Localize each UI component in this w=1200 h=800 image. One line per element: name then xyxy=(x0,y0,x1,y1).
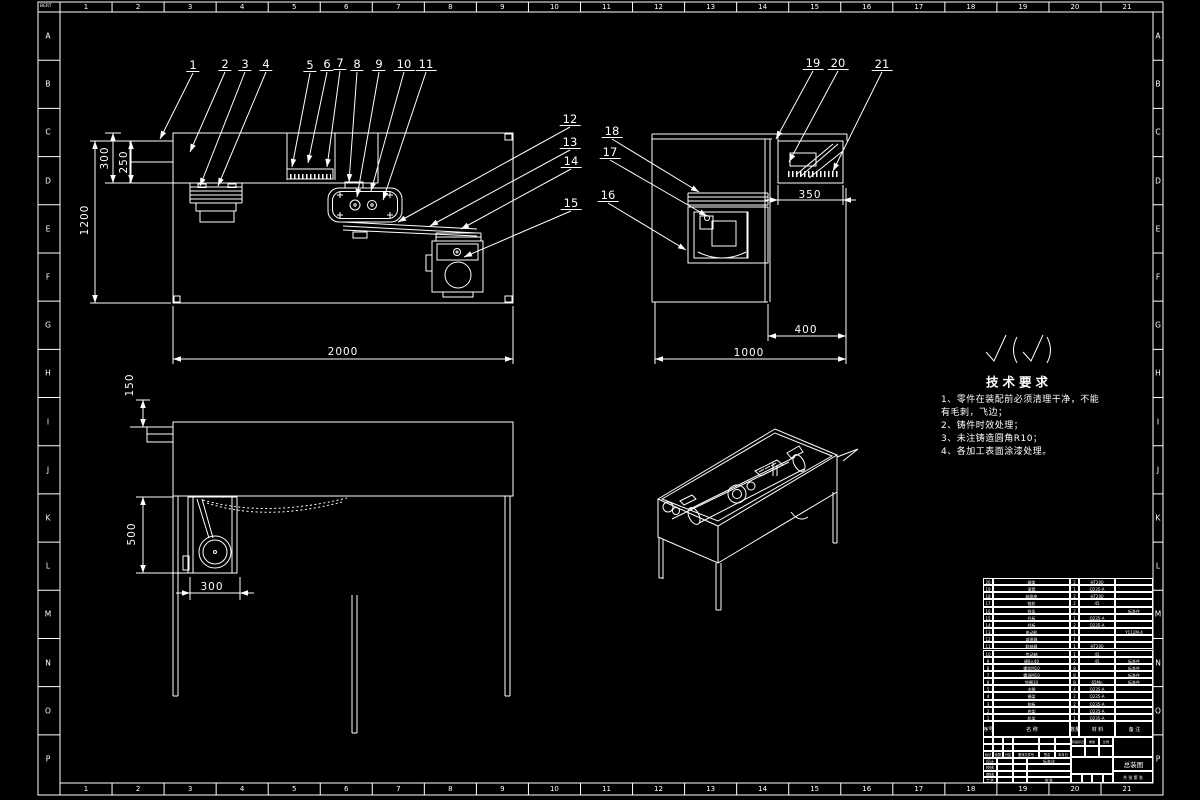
titleblock-stage-box xyxy=(1099,746,1113,757)
parts-row-3-no: 3 xyxy=(983,700,993,707)
tech-requirement-line: 2、铸件时效处理； xyxy=(941,420,1023,433)
parts-row-15-name: 托板 xyxy=(993,614,1070,621)
titleblock-cell xyxy=(1003,744,1013,751)
callout-20: 20 xyxy=(828,57,849,70)
zone-letter-left: O xyxy=(45,706,51,715)
parts-row-10-rem xyxy=(1115,650,1153,657)
front-view xyxy=(90,133,513,364)
surface-finish-icon xyxy=(986,335,1051,363)
parts-row-1-no: 1 xyxy=(983,714,993,721)
zone-number-bottom: 18 xyxy=(966,785,975,793)
zone-letter-right: J xyxy=(1157,465,1159,474)
parts-row-15-qty: 1 xyxy=(1070,614,1079,621)
zone-letter-right: E xyxy=(1156,224,1161,233)
parts-row-12-mat xyxy=(1079,635,1115,642)
titleblock-sign-cell xyxy=(997,777,1013,783)
parts-row-15-mat: Q235-A xyxy=(1079,614,1115,621)
callout-16: 16 xyxy=(598,189,619,202)
zone-letter-right: I xyxy=(1157,417,1159,426)
zone-number-bottom: 21 xyxy=(1123,785,1132,793)
parts-row-17-name: 链轮 xyxy=(993,599,1070,606)
parts-row-3-rem xyxy=(1115,700,1153,707)
zone-letter-right: G xyxy=(1155,321,1161,330)
titleblock-stage-box xyxy=(1071,746,1085,757)
parts-row-12-rem xyxy=(1115,635,1153,642)
zone-number-top: 5 xyxy=(292,3,296,11)
dimension-2000: 2000 xyxy=(328,346,359,358)
callout-14: 14 xyxy=(561,155,582,168)
zone-number-top: 2 xyxy=(136,3,140,11)
parts-row-8-rem: 标准件 xyxy=(1115,664,1153,671)
parts-row-12-qty: 1 xyxy=(1070,635,1079,642)
callout-6: 6 xyxy=(320,58,333,71)
parts-row-14-mat: Q235-A xyxy=(1079,621,1115,628)
titleblock-drawing-title: 总装图 xyxy=(1113,757,1153,771)
zone-letter-right: P xyxy=(1156,754,1161,763)
parts-row-6-no: 6 xyxy=(983,678,993,685)
parts-row-4-qty: 2 xyxy=(1070,692,1079,699)
parts-row-2-mat: Q235-A xyxy=(1079,707,1115,714)
parts-row-14-qty: 2 xyxy=(1070,621,1079,628)
parts-row-17-qty: 2 xyxy=(1070,599,1079,606)
callout-18: 18 xyxy=(602,125,623,138)
titleblock-cell xyxy=(1003,737,1013,744)
callout-5: 5 xyxy=(303,59,316,72)
zone-letter-left: I xyxy=(47,417,49,426)
zone-letter-left: H xyxy=(45,369,51,378)
zone-number-top: 16 xyxy=(862,3,871,11)
parts-row-10-mat: 45 xyxy=(1079,650,1115,657)
parts-row-11-name: 联轴器 xyxy=(993,642,1070,649)
callout-10: 10 xyxy=(394,58,415,71)
zone-letter-left: B xyxy=(45,80,50,89)
titleblock-cell xyxy=(1013,737,1039,744)
tech-requirement-line: 有毛刺，飞边； xyxy=(941,407,1008,420)
dimension-350: 350 xyxy=(798,189,821,201)
isometric-view xyxy=(658,429,858,610)
bottom-view xyxy=(130,400,513,733)
parts-row-15-no: 15 xyxy=(983,614,993,621)
parts-row-19-no: 19 xyxy=(983,585,993,592)
zone-number-top: 4 xyxy=(240,3,244,11)
zone-letter-left: E xyxy=(46,224,51,233)
titleblock-cell xyxy=(983,737,993,744)
parts-header: 序号 xyxy=(983,721,993,737)
parts-row-9-rem: 标准件 xyxy=(1115,657,1153,664)
parts-row-9-qty: 2 xyxy=(1070,657,1079,664)
parts-row-13-no: 13 xyxy=(983,628,993,635)
parts-row-6-name: 垫圈10 xyxy=(993,678,1070,685)
zone-number-top: 6 xyxy=(344,3,348,11)
parts-row-9-no: 9 xyxy=(983,657,993,664)
parts-row-11-qty: 1 xyxy=(1070,642,1079,649)
zone-number-bottom: 11 xyxy=(602,785,611,793)
parts-row-16-rem: 标准件 xyxy=(1115,607,1153,614)
parts-row-16-name: 链条 xyxy=(993,607,1070,614)
parts-row-17-no: 17 xyxy=(983,599,993,606)
dimension-250: 250 xyxy=(118,150,130,173)
zone-number-bottom: 17 xyxy=(914,785,923,793)
parts-row-5-rem xyxy=(1115,685,1153,692)
titleblock-drawing-no xyxy=(1113,737,1153,757)
dimension-500: 500 xyxy=(126,522,138,545)
zone-number-top: 8 xyxy=(448,3,452,11)
parts-header: 数量 xyxy=(1070,721,1079,737)
parts-row-8-name: 螺栓M10 xyxy=(993,664,1070,671)
zone-letter-left: N xyxy=(45,658,51,667)
zone-letter-left: K xyxy=(46,514,51,523)
tech-requirement-line: 1、零件在装配前必须清理干净，不能 xyxy=(941,394,1099,407)
zone-letter-right: L xyxy=(1156,562,1160,571)
callout-12: 12 xyxy=(560,113,581,126)
parts-row-20-qty: 2 xyxy=(1070,578,1079,585)
zone-number-bottom: 5 xyxy=(292,785,296,793)
zone-number-bottom: 1 xyxy=(84,785,88,793)
parts-row-6-qty: 8 xyxy=(1070,678,1079,685)
zone-number-top: 9 xyxy=(500,3,504,11)
zone-letter-right: A xyxy=(1155,32,1160,41)
parts-row-13-rem: Y112M-4 xyxy=(1115,628,1153,635)
parts-row-18-qty: 2 xyxy=(1070,592,1079,599)
titleblock-change-label: 处数 xyxy=(993,751,1003,758)
tech-requirement-line: 4、各加工表面涂漆处理。 xyxy=(941,446,1052,459)
titleblock-cell xyxy=(1082,774,1093,783)
callout-9: 9 xyxy=(372,58,385,71)
parts-row-13-name: 电动机 xyxy=(993,628,1070,635)
titleblock-change-label: 分区 xyxy=(1003,751,1013,758)
zone-letter-right: C xyxy=(1155,128,1160,137)
parts-row-5-name: 支腿 xyxy=(993,685,1070,692)
zone-number-bottom: 7 xyxy=(396,785,400,793)
parts-row-8-mat xyxy=(1079,664,1115,671)
parts-row-15-rem xyxy=(1115,614,1153,621)
zone-letter-right: B xyxy=(1155,80,1160,89)
parts-row-14-no: 14 xyxy=(983,621,993,628)
parts-row-20-rem xyxy=(1115,578,1153,585)
parts-row-18-name: 轴承座 xyxy=(993,592,1070,599)
parts-row-16-no: 16 xyxy=(983,607,993,614)
zone-number-top: 11 xyxy=(602,3,611,11)
zone-number-top: 1 xyxy=(84,3,88,11)
zone-number-top: 7 xyxy=(396,3,400,11)
callout-4: 4 xyxy=(259,58,272,71)
dimension-300: 300 xyxy=(200,581,223,593)
zone-letter-left: A xyxy=(45,32,50,41)
zone-number-top: 10 xyxy=(550,3,559,11)
tech-requirements-title: 技术要求 xyxy=(986,372,1052,391)
zone-number-bottom: 3 xyxy=(188,785,192,793)
parts-row-20-mat: HT200 xyxy=(1079,578,1115,585)
parts-row-4-name: 横梁 xyxy=(993,692,1070,699)
dimension-1000: 1000 xyxy=(734,347,765,359)
zone-number-top: 13 xyxy=(706,3,715,11)
parts-row-8-no: 8 xyxy=(983,664,993,671)
callout-17: 17 xyxy=(600,146,621,159)
zone-number-bottom: 16 xyxy=(862,785,871,793)
titleblock-cell xyxy=(1039,744,1055,751)
zone-letter-left: L xyxy=(46,562,50,571)
parts-row-9-name: 键8×40 xyxy=(993,657,1070,664)
parts-row-10-qty: 1 xyxy=(1070,650,1079,657)
parts-row-7-no: 7 xyxy=(983,671,993,678)
callout-19: 19 xyxy=(803,57,824,70)
parts-row-4-no: 4 xyxy=(983,692,993,699)
parts-row-5-no: 5 xyxy=(983,685,993,692)
parts-row-5-qty: 4 xyxy=(1070,685,1079,692)
zone-letter-right: O xyxy=(1155,706,1161,715)
zone-number-bottom: 19 xyxy=(1018,785,1027,793)
parts-row-20-no: 20 xyxy=(983,578,993,585)
parts-row-13-qty: 1 xyxy=(1070,628,1079,635)
zone-number-bottom: 15 xyxy=(810,785,819,793)
zone-number-top: 18 xyxy=(966,3,975,11)
zone-number-top: 15 xyxy=(810,3,819,11)
callout-2: 2 xyxy=(218,58,231,71)
titleblock-cell xyxy=(993,744,1003,751)
titleblock-cell xyxy=(1039,737,1055,744)
parts-row-2-no: 2 xyxy=(983,707,993,714)
parts-row-17-mat: 45 xyxy=(1079,599,1115,606)
zone-number-top: 3 xyxy=(188,3,192,11)
parts-row-8-qty: 8 xyxy=(1070,664,1079,671)
parts-row-1-rem xyxy=(1115,714,1153,721)
parts-row-9-mat: 45 xyxy=(1079,657,1115,664)
parts-row-11-no: 11 xyxy=(983,642,993,649)
callout-7: 7 xyxy=(333,57,346,70)
zone-letter-left: F xyxy=(46,273,50,282)
titleblock-cell xyxy=(1092,774,1103,783)
parts-row-14-name: 挡板 xyxy=(993,621,1070,628)
parts-row-5-mat: Q235-A xyxy=(1079,685,1115,692)
zone-number-top: 21 xyxy=(1123,3,1132,11)
zone-number-top: 19 xyxy=(1018,3,1027,11)
titleblock-sign-cell: 批准 xyxy=(1027,777,1071,783)
parts-row-11-rem xyxy=(1115,642,1153,649)
zone-number-top: 14 xyxy=(758,3,767,11)
parts-row-2-name: 底架 xyxy=(993,707,1070,714)
titleblock-cell xyxy=(1055,737,1071,744)
zone-letter-right: K xyxy=(1156,514,1161,523)
parts-row-1-mat: Q235-A xyxy=(1079,714,1115,721)
callout-3: 3 xyxy=(238,58,251,71)
dimension-300: 300 xyxy=(99,146,111,169)
zone-number-bottom: 14 xyxy=(758,785,767,793)
parts-header: 材 料 xyxy=(1079,721,1115,737)
corner-stamp: BERT xyxy=(40,4,51,9)
zone-letter-left: G xyxy=(45,321,51,330)
parts-row-2-qty: 1 xyxy=(1070,707,1079,714)
parts-row-4-mat: Q235-A xyxy=(1079,692,1115,699)
zone-number-top: 17 xyxy=(914,3,923,11)
parts-row-11-mat: HT200 xyxy=(1079,642,1115,649)
parts-row-3-name: 侧板 xyxy=(993,700,1070,707)
parts-row-10-name: 传动轴 xyxy=(993,650,1070,657)
titleblock-cell xyxy=(1055,744,1071,751)
parts-row-16-mat xyxy=(1079,607,1115,614)
titleblock-cell xyxy=(1071,774,1082,783)
dimension-400: 400 xyxy=(794,324,817,336)
parts-row-20-name: 端盖 xyxy=(993,578,1070,585)
titleblock-cell xyxy=(1103,774,1114,783)
zone-letter-left: C xyxy=(45,128,50,137)
parts-row-17-rem xyxy=(1115,599,1153,606)
zone-letter-left: M xyxy=(45,610,51,619)
parts-row-3-qty: 2 xyxy=(1070,700,1079,707)
dimension-150: 150 xyxy=(124,373,136,396)
parts-row-7-name: 螺母M10 xyxy=(993,671,1070,678)
titleblock-stage-label: 比例 xyxy=(1099,737,1113,746)
parts-row-7-qty: 8 xyxy=(1070,671,1079,678)
titleblock-sheet-label: 共 张 第 张 xyxy=(1113,771,1153,783)
titleblock-sign-cell: 工艺 xyxy=(983,777,997,783)
zone-number-top: 20 xyxy=(1070,3,1079,11)
titleblock-stage-label: 重量 xyxy=(1085,737,1099,746)
callout-21: 21 xyxy=(872,58,893,71)
zone-letter-right: F xyxy=(1156,273,1160,282)
zone-number-bottom: 2 xyxy=(136,785,140,793)
zone-number-bottom: 6 xyxy=(344,785,348,793)
titleblock-cell xyxy=(993,737,1003,744)
parts-row-19-qty: 1 xyxy=(1070,585,1079,592)
parts-row-19-mat: Q235-A xyxy=(1079,585,1115,592)
zone-letter-left: P xyxy=(46,754,51,763)
zone-number-bottom: 4 xyxy=(240,785,244,793)
callout-1: 1 xyxy=(186,59,199,72)
zone-number-bottom: 13 xyxy=(706,785,715,793)
titleblock-cell xyxy=(983,744,993,751)
parts-row-18-mat: HT200 xyxy=(1079,592,1115,599)
parts-row-4-rem xyxy=(1115,692,1153,699)
parts-row-13-mat xyxy=(1079,628,1115,635)
parts-header: 备 注 xyxy=(1115,721,1153,737)
parts-header: 名 称 xyxy=(993,721,1070,737)
titleblock-stage-box xyxy=(1085,746,1099,757)
zone-letter-right: M xyxy=(1155,610,1161,619)
titleblock-change-label: 更改文件号 xyxy=(1013,751,1039,758)
parts-row-7-mat xyxy=(1079,671,1115,678)
titleblock-change-label: 签名 xyxy=(1039,751,1055,758)
zone-number-bottom: 8 xyxy=(448,785,452,793)
titleblock-sign-cell xyxy=(1013,777,1027,783)
parts-row-1-qty: 1 xyxy=(1070,714,1079,721)
titleblock-cell xyxy=(1013,744,1039,751)
parts-row-18-rem xyxy=(1115,592,1153,599)
dimension-1200: 1200 xyxy=(79,205,91,236)
titleblock-change-label: 年月日 xyxy=(1055,751,1071,758)
titleblock-stage-label: 阶段标记 xyxy=(1071,737,1085,746)
zone-number-bottom: 10 xyxy=(550,785,559,793)
parts-row-14-rem xyxy=(1115,621,1153,628)
parts-row-2-rem xyxy=(1115,707,1153,714)
titleblock-change-label: 标记 xyxy=(983,751,993,758)
parts-row-3-mat: Q235-A xyxy=(1079,700,1115,707)
callout-15: 15 xyxy=(561,197,582,210)
tech-requirement-line: 3、未注铸造圆角R10； xyxy=(941,433,1042,446)
parts-row-19-rem xyxy=(1115,585,1153,592)
parts-row-12-name: 减速器 xyxy=(993,635,1070,642)
zone-letter-right: D xyxy=(1155,176,1161,185)
parts-row-16-qty: 2 xyxy=(1070,607,1079,614)
titleblock-cell xyxy=(1071,757,1113,774)
callout-11: 11 xyxy=(416,58,437,71)
zone-letter-right: H xyxy=(1155,369,1161,378)
drawing-sheet[interactable]: 技术要求 1、零件在装配前必须清理干净，不能有毛刺，飞边；2、铸件时效处理；3、… xyxy=(0,0,1200,800)
parts-row-19-name: 滚筒 xyxy=(993,585,1070,592)
parts-row-6-mat: 65Mn xyxy=(1079,678,1115,685)
callout-8: 8 xyxy=(350,58,363,71)
zone-number-bottom: 20 xyxy=(1070,785,1079,793)
parts-row-7-rem: 标准件 xyxy=(1115,671,1153,678)
parts-row-18-no: 18 xyxy=(983,592,993,599)
parts-row-6-rem: 标准件 xyxy=(1115,678,1153,685)
zone-number-top: 12 xyxy=(654,3,663,11)
parts-row-12-no: 12 xyxy=(983,635,993,642)
parts-row-1-name: 机架 xyxy=(993,714,1070,721)
zone-letter-right: N xyxy=(1155,658,1161,667)
zone-letter-left: D xyxy=(45,176,51,185)
zone-number-bottom: 12 xyxy=(654,785,663,793)
zone-number-bottom: 9 xyxy=(500,785,504,793)
parts-row-10-no: 10 xyxy=(983,650,993,657)
callout-13: 13 xyxy=(560,136,581,149)
zone-letter-left: J xyxy=(47,465,49,474)
